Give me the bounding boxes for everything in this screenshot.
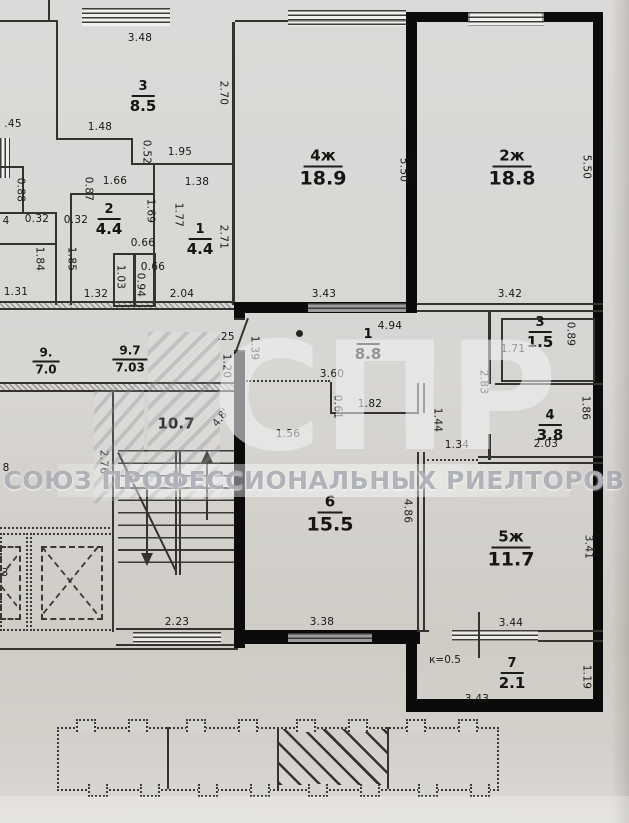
room-number: 7 <box>500 656 523 674</box>
dimension-label: 0.87 <box>83 177 94 202</box>
annotation-label: 3 <box>2 568 9 579</box>
photo-bottom-margin <box>0 796 629 823</box>
room-area: 15.5 <box>307 514 354 536</box>
dimension-label: 1.85 <box>66 247 77 272</box>
room-area: 18.9 <box>300 168 347 190</box>
dimension-label: 0.88 <box>15 178 26 203</box>
room-label: 9.7.0 <box>33 346 60 377</box>
dimension-label: 3.43 <box>312 289 337 300</box>
dimension-label: 2.23 <box>165 617 190 628</box>
dimension-label: 1.84 <box>34 247 45 272</box>
room-number: 4ж <box>303 147 342 168</box>
dimension-label: .25 <box>217 332 235 343</box>
room-number: 9. <box>33 346 60 363</box>
dimension-label: 2.70 <box>218 81 229 106</box>
room-number: 1 <box>356 327 379 345</box>
dimension-label: 1.66 <box>103 176 128 187</box>
dimension-label: 3.41 <box>583 535 594 560</box>
room-area: 7.0 <box>35 363 56 377</box>
room-label: 10.7 <box>150 415 201 434</box>
dimension-label: 3.42 <box>498 289 523 300</box>
dimension-label: 3.48 <box>128 33 153 44</box>
room-area: 8.8 <box>355 345 382 363</box>
room-number: 3 <box>528 315 551 333</box>
room-number: 2ж <box>492 147 531 168</box>
dimension-label: 0.89 <box>565 322 576 347</box>
dimension-label: 1.77 <box>173 203 184 228</box>
room-label: 14.4 <box>187 222 214 258</box>
dimension-label: 1.44 <box>432 408 443 433</box>
annotation-label: 4.8' <box>211 407 231 429</box>
room-number: 2 <box>97 202 120 220</box>
room-label: 615.5 <box>307 493 354 536</box>
room-label: 4ж18.9 <box>300 147 347 190</box>
photo-edge-shadow <box>611 0 629 823</box>
room-number: 4 <box>538 408 561 426</box>
annotation-label: 8 <box>3 463 10 474</box>
dimension-label: 1.95 <box>168 147 193 158</box>
room-number: 9.7 <box>112 344 147 361</box>
dimension-label: 1.03 <box>115 265 126 290</box>
room-area: 11.7 <box>488 549 535 571</box>
room-label: 9.77.03 <box>112 344 147 375</box>
dimension-label: 0.94 <box>135 273 146 298</box>
dimension-label: 2.83 <box>478 370 489 395</box>
dimension-label: 1.69 <box>145 199 156 224</box>
room-label: 2ж18.8 <box>489 147 536 190</box>
dimension-label: 3.60 <box>320 369 345 380</box>
room-area: 7.03 <box>115 361 145 375</box>
dimension-label: 3.44 <box>499 618 524 629</box>
room-label: 24.4 <box>96 202 123 238</box>
dimension-label: 5.50 <box>398 158 409 183</box>
room-number: 5ж <box>491 528 530 549</box>
dimension-label: 2.04 <box>170 289 195 300</box>
room-area: 8.5 <box>130 97 157 115</box>
room-label: 18.8 <box>355 327 382 363</box>
room-label: 72.1 <box>499 656 526 692</box>
ink-dot <box>296 330 303 337</box>
dimension-label: 1.56 <box>276 429 301 440</box>
dimension-label: 1.48 <box>88 122 113 133</box>
dimension-label: 0.32 <box>64 215 89 226</box>
annotation-label: 4 <box>3 216 10 227</box>
dimension-label: 1.71 <box>501 344 526 355</box>
floorplan-photo: 38.524.414.44ж18.92ж18.818.831.543.8615.… <box>0 0 629 823</box>
dimension-label: 1.31 <box>4 287 29 298</box>
dimension-label: 1.38 <box>185 177 210 188</box>
dimension-label: 1.34 <box>445 440 470 451</box>
dimension-label: 1.39 <box>249 336 260 361</box>
room-number: 1 <box>188 222 211 240</box>
room-area: 4.4 <box>187 240 214 258</box>
dimension-label: 1.20 <box>221 354 232 379</box>
dimension-label: .45 <box>4 119 22 130</box>
room-number: 6 <box>318 493 342 514</box>
room-area: 1.5 <box>527 333 554 351</box>
room-area: 4.4 <box>96 220 123 238</box>
dimension-label: 3.43 <box>465 694 490 705</box>
dimension-label: 2.71 <box>218 225 229 250</box>
dimension-label: 3.38 <box>310 617 335 628</box>
dimension-label: 2.76 <box>98 450 109 475</box>
dimension-label: 1.86 <box>580 396 591 421</box>
dimension-label: 4.94 <box>378 321 403 332</box>
dimension-label: 0.66 <box>141 262 166 273</box>
dimension-label: 0.61 <box>332 395 343 420</box>
dimension-label: 5.50 <box>581 155 592 180</box>
room-area: 2.1 <box>499 674 526 692</box>
dimension-label: 1.19 <box>581 665 592 690</box>
annotation-label: к=0.5 <box>429 655 461 666</box>
room-number: 3 <box>131 79 154 97</box>
room-label: 31.5 <box>527 315 554 351</box>
dimension-label: 0.32 <box>25 214 50 225</box>
dimension-label: 4.86 <box>402 499 413 524</box>
dimension-label: 1.32 <box>84 289 109 300</box>
dimension-label: 1.82 <box>358 399 383 410</box>
room-label: 5ж11.7 <box>488 528 535 571</box>
labels-layer: 38.524.414.44ж18.92ж18.818.831.543.8615.… <box>0 0 629 823</box>
dimension-label: 0.52 <box>141 140 152 165</box>
room-area: 18.8 <box>489 168 536 190</box>
dimension-label: 2.03 <box>534 439 559 450</box>
room-label: 38.5 <box>130 79 157 115</box>
room-number: 10.7 <box>150 415 201 434</box>
dimension-label: 0.66 <box>131 238 156 249</box>
